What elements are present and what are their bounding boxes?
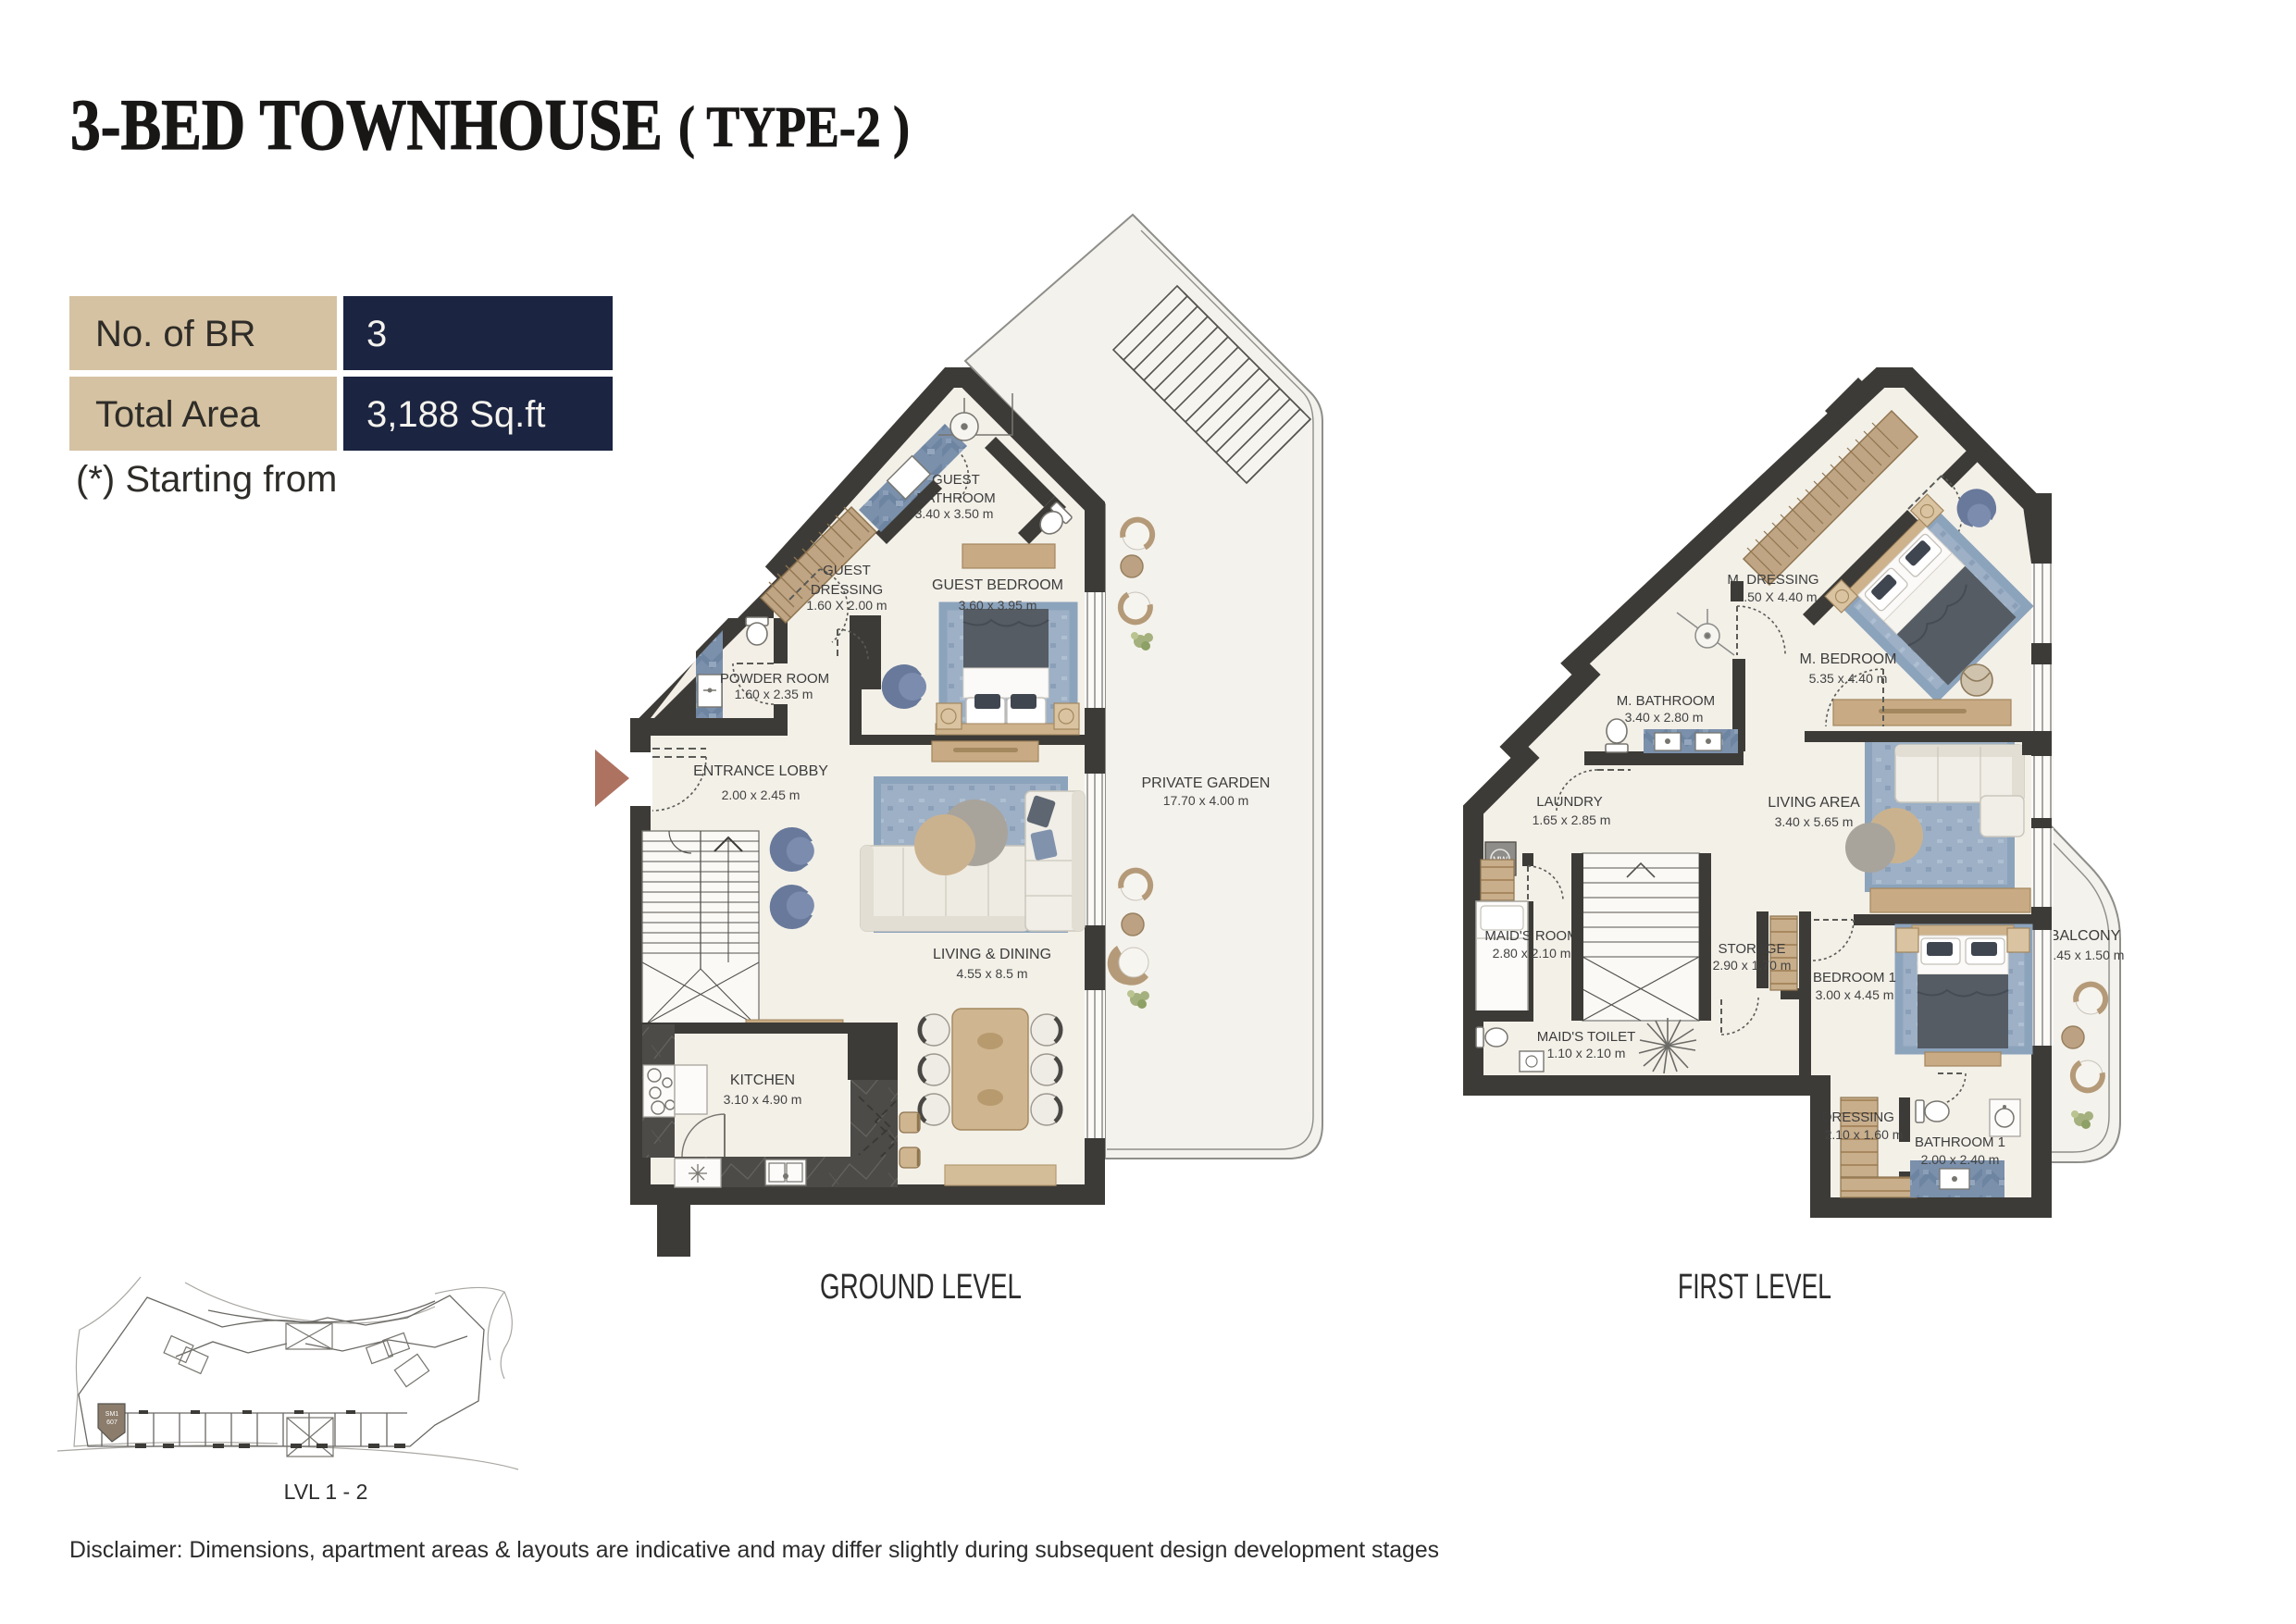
svg-text:1.60 X 2.00 m: 1.60 X 2.00 m <box>806 598 887 613</box>
svg-text:3.00 x 4.45 m: 3.00 x 4.45 m <box>1816 987 1894 1002</box>
svg-text:3-BED TOWNHOUSE: 3-BED TOWNHOUSE <box>70 84 663 165</box>
svg-text:STORAGE: STORAGE <box>1718 941 1785 957</box>
svg-text:3: 3 <box>366 314 387 354</box>
svg-text:BEDROOM 1: BEDROOM 1 <box>1813 970 1896 986</box>
svg-text:SM1: SM1 <box>105 1411 119 1418</box>
svg-text:3.60 x 3.95 m: 3.60 x 3.95 m <box>959 598 1037 613</box>
svg-text:2.80 x 2.10 m: 2.80 x 2.10 m <box>1493 946 1571 961</box>
svg-text:5.35 x 4.40 m: 5.35 x 4.40 m <box>1809 671 1888 686</box>
svg-text:607: 607 <box>106 1419 118 1426</box>
svg-text:PRIVATE GARDEN: PRIVATE GARDEN <box>1142 775 1271 791</box>
svg-text:( TYPE-2 ): ( TYPE-2 ) <box>678 96 910 159</box>
svg-text:2.00 x 2.45 m: 2.00 x 2.45 m <box>722 787 800 802</box>
svg-text:DRESSING 1: DRESSING 1 <box>1822 1110 1906 1125</box>
svg-text:BATHROOM 1: BATHROOM 1 <box>1915 1134 2005 1150</box>
svg-text:1.50 X 4.40 m: 1.50 X 4.40 m <box>1736 589 1817 604</box>
svg-text:17.70 x 4.00 m: 17.70 x 4.00 m <box>1163 793 1249 808</box>
svg-text:3.40 x 3.50 m: 3.40 x 3.50 m <box>915 506 994 521</box>
svg-text:LVL 1 - 2: LVL 1 - 2 <box>284 1480 368 1504</box>
svg-text:2.00 x 2.40 m: 2.00 x 2.40 m <box>1921 1152 2000 1167</box>
svg-text:FIRST LEVEL: FIRST LEVEL <box>1678 1268 1831 1307</box>
svg-text:1.60 x 2.35 m: 1.60 x 2.35 m <box>735 687 813 701</box>
svg-text:LIVING AREA: LIVING AREA <box>1768 795 1860 811</box>
svg-text:GUEST: GUEST <box>932 472 980 488</box>
svg-text:1.10 x 2.10 m: 1.10 x 2.10 m <box>1547 1046 1626 1060</box>
svg-text:LIVING & DINING: LIVING & DINING <box>933 947 1051 962</box>
svg-text:GUEST: GUEST <box>823 563 871 578</box>
svg-text:Total Area: Total Area <box>95 394 261 435</box>
svg-text:3.10 x 4.90 m: 3.10 x 4.90 m <box>724 1092 802 1107</box>
svg-text:MAID'S ROOM: MAID'S ROOM <box>1484 928 1578 944</box>
svg-text:GUEST BEDROOM: GUEST BEDROOM <box>932 577 1063 593</box>
svg-text:M. BEDROOM: M. BEDROOM <box>1800 651 1897 667</box>
svg-text:(*) Starting from: (*) Starting from <box>76 459 337 500</box>
svg-text:LAUNDRY: LAUNDRY <box>1536 794 1602 810</box>
svg-text:ENTRANCE LOBBY: ENTRANCE LOBBY <box>693 763 828 779</box>
svg-text:KITCHEN: KITCHEN <box>730 1072 795 1088</box>
svg-text:3.40 x 5.65 m: 3.40 x 5.65 m <box>1775 814 1854 829</box>
svg-text:3.40 x 2.80 m: 3.40 x 2.80 m <box>1625 710 1704 725</box>
svg-text:MAID'S TOILET: MAID'S TOILET <box>1537 1029 1636 1045</box>
svg-text:3,188 Sq.ft: 3,188 Sq.ft <box>366 394 545 435</box>
svg-text:6.45 x 1.50 m: 6.45 x 1.50 m <box>2046 948 2125 962</box>
svg-text:BATHROOM: BATHROOM <box>916 490 996 506</box>
svg-text:M. BATHROOM: M. BATHROOM <box>1617 693 1715 709</box>
svg-text:1.65 x 2.85 m: 1.65 x 2.85 m <box>1533 812 1611 827</box>
svg-text:DRESSING: DRESSING <box>811 582 883 598</box>
svg-text:4.55 x 8.5 m: 4.55 x 8.5 m <box>956 966 1027 981</box>
svg-text:No. of BR: No. of BR <box>95 314 255 354</box>
svg-text:2.90 x 1.70 m: 2.90 x 1.70 m <box>1713 958 1792 973</box>
svg-text:Disclaimer: Dimensions, apartm: Disclaimer: Dimensions, apartment areas … <box>69 1537 1439 1563</box>
svg-text:GROUND LEVEL: GROUND LEVEL <box>820 1268 1022 1307</box>
svg-text:2.10 x 1.60 m: 2.10 x 1.60 m <box>1825 1127 1904 1142</box>
svg-text:POWDER ROOM: POWDER ROOM <box>720 671 829 687</box>
svg-text:BALCONY: BALCONY <box>2050 928 2121 944</box>
